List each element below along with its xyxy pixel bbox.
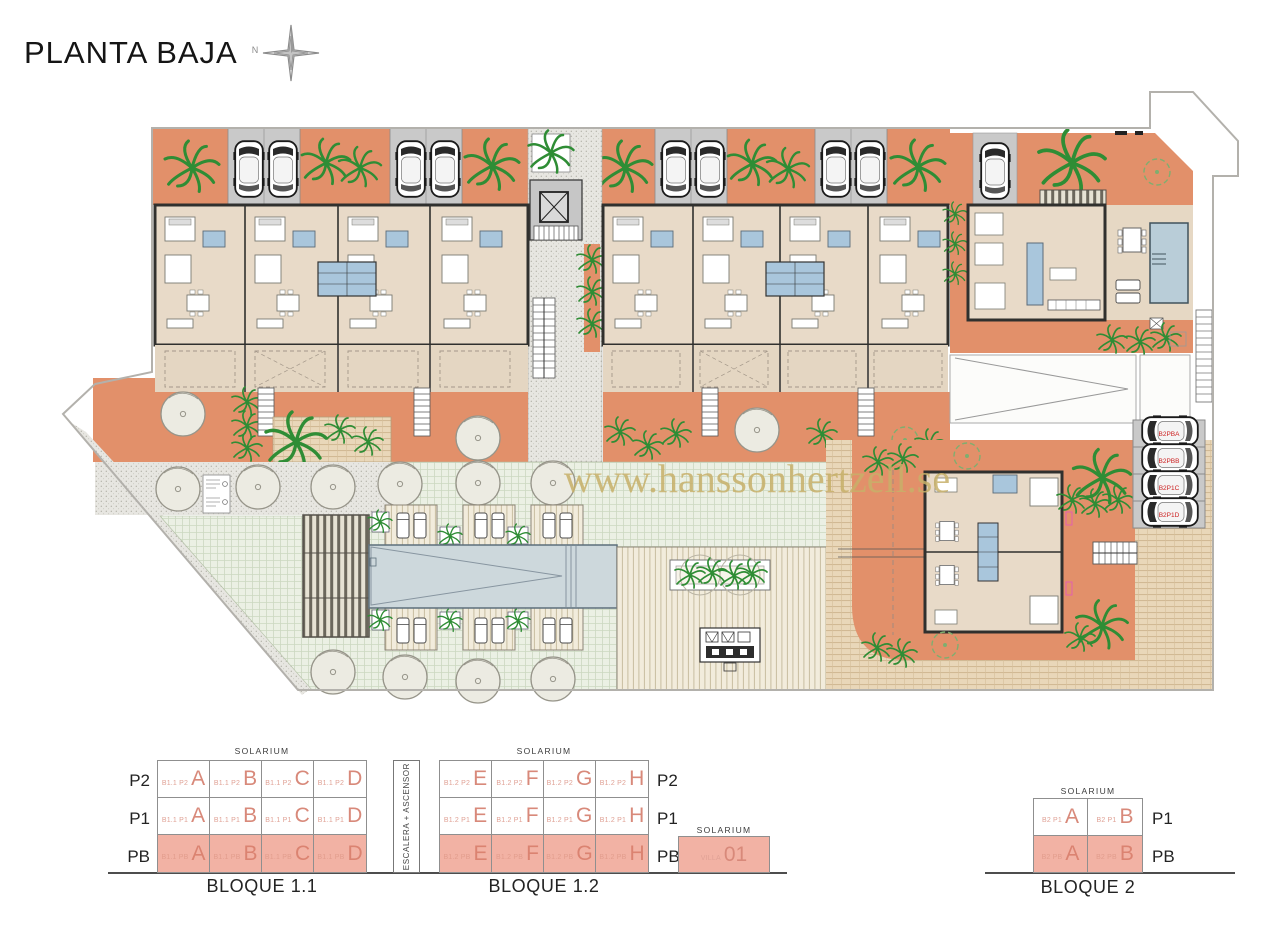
car-icon xyxy=(267,141,298,197)
sun-lounger-icon xyxy=(543,513,555,538)
level-label-p2: P2 xyxy=(657,771,678,791)
north-label: N xyxy=(252,45,259,55)
stair-elevator-box: ESCALERA + ASCENSOR xyxy=(393,760,420,873)
tree-icon xyxy=(456,659,500,703)
brick-path xyxy=(266,412,391,468)
block-1-2-building xyxy=(603,205,948,345)
solarium-label: SOLARIUM xyxy=(678,825,770,835)
watermark: www.hanssonhertzell.se xyxy=(564,456,950,501)
sun-lounger-icon xyxy=(543,618,555,643)
tree-icon xyxy=(156,467,200,511)
sun-lounger-icon xyxy=(560,618,572,643)
sun-lounger-icon xyxy=(1116,293,1140,303)
bloque-2-parking: B2PBA B2PBB B2P1C B2P1D xyxy=(1133,415,1205,528)
unit-cell: B1.2 PBG xyxy=(544,835,596,872)
level-label-p1: P1 xyxy=(1152,809,1173,829)
unit-cell: B1.1 P2C xyxy=(262,761,314,798)
tree-icon xyxy=(311,650,355,694)
level-label-pb: PB xyxy=(657,847,680,867)
central-walkway xyxy=(528,128,607,462)
site-sign xyxy=(203,475,230,513)
parking-label: B2P1D xyxy=(1159,512,1180,519)
unit-cell: B2 P1B xyxy=(1088,799,1142,836)
tree-icon xyxy=(531,657,575,701)
level-label-pb: PB xyxy=(105,847,150,867)
stairs-icon xyxy=(534,226,578,240)
parking-label: B2PBB xyxy=(1159,458,1180,465)
level-label-p1: P1 xyxy=(105,809,150,829)
tree-icon xyxy=(236,465,280,509)
site-plan: B2PBA B2PBB B2P1C B2P1D www.hanssonhertz… xyxy=(0,0,1280,710)
unit-cell: B1.1 P2A xyxy=(158,761,210,798)
car-icon xyxy=(395,141,426,197)
unit-cell: B1.2 P1H xyxy=(596,798,648,835)
unit-cell: B1.1 P2D xyxy=(314,761,366,798)
car-icon xyxy=(854,141,885,197)
car-icon xyxy=(233,141,264,197)
unit-cell: B1.2 P1F xyxy=(492,798,544,835)
unit-cell: B1.1 P1A xyxy=(158,798,210,835)
level-label-p1: P1 xyxy=(657,809,678,829)
bloque-1-2-diagram: B1.2 P2E B1.2 P2F B1.2 P2G B1.2 P2H B1.2… xyxy=(439,760,649,873)
bloque-1-1-caption: BLOQUE 1.1 xyxy=(182,876,342,897)
unit-cell: B1.1 P1B xyxy=(210,798,262,835)
unit-cell: B1.2 PBH xyxy=(596,835,648,872)
block-1-1-gardens-parking xyxy=(152,128,530,206)
east-deck xyxy=(617,547,833,690)
tree-icon xyxy=(456,461,500,505)
villa-pool xyxy=(1150,223,1188,303)
bloque-1-1-diagram: B1.1 P2A B1.1 P2B B1.1 P2C B1.1 P2D B1.1… xyxy=(157,760,367,873)
sun-lounger-icon xyxy=(414,513,426,538)
unit-cell: B1.2 P2G xyxy=(544,761,596,798)
page-title: PLANTA BAJA xyxy=(24,35,238,71)
car-icon xyxy=(694,141,725,197)
unit-cell: B1.2 P2E xyxy=(440,761,492,798)
unit-cell: B1.2 P1E xyxy=(440,798,492,835)
unit-cell: B1.1 P1D xyxy=(314,798,366,835)
unit-cell: B1.2 P2F xyxy=(492,761,544,798)
sun-lounger-icon xyxy=(475,513,487,538)
solarium-label: SOLARIUM xyxy=(157,746,367,756)
unit-cell: B1.1 PBD xyxy=(314,835,366,872)
bloque-2-diagram: B2 P1A B2 P1B B2 PBA B2 PBB xyxy=(1033,798,1143,873)
bloque-2-caption: BLOQUE 2 xyxy=(1008,877,1168,898)
header: PLANTA BAJA N xyxy=(24,24,320,82)
unit-cell: B1.2 P1G xyxy=(544,798,596,835)
sun-lounger-icon xyxy=(397,513,409,538)
solarium-label: SOLARIUM xyxy=(439,746,649,756)
car-icon xyxy=(660,141,691,197)
tree-icon xyxy=(456,416,500,460)
block-1-1-building xyxy=(155,205,528,345)
pergola xyxy=(303,515,369,637)
parking-label: B2P1C xyxy=(1159,485,1180,492)
villa-diagram: VILLA 01 xyxy=(678,836,770,873)
sun-lounger-icon xyxy=(414,618,426,643)
tree-icon xyxy=(383,655,427,699)
unit-cell: B1.2 P2H xyxy=(596,761,648,798)
block-1-2-gardens-parking xyxy=(598,128,950,206)
tree-icon xyxy=(311,465,355,509)
unit-cell: B1.1 PBA xyxy=(158,835,210,872)
pergola xyxy=(1040,190,1106,205)
sun-lounger-icon xyxy=(560,513,572,538)
ramp-area xyxy=(950,355,1190,423)
car-icon xyxy=(429,141,460,197)
east-stairs xyxy=(1196,310,1212,402)
communal-pool xyxy=(369,545,617,608)
sun-lounger-icon xyxy=(492,513,504,538)
sun-lounger-icon xyxy=(397,618,409,643)
stair-elevator-label: ESCALERA + ASCENSOR xyxy=(402,763,411,870)
car-icon xyxy=(820,141,851,197)
level-label-p2: P2 xyxy=(105,771,150,791)
sun-lounger-icon xyxy=(1116,280,1140,290)
unit-cell: B1.1 P1C xyxy=(262,798,314,835)
tree-icon xyxy=(161,392,205,436)
unit-cell: B1.2 PBF xyxy=(492,835,544,872)
unit-cell: B1.1 P2B xyxy=(210,761,262,798)
tree-icon xyxy=(378,462,422,506)
tree-icon xyxy=(735,408,779,452)
solarium-label: SOLARIUM xyxy=(1033,786,1143,796)
car-icon xyxy=(979,143,1010,199)
unit-cell: B2 PBB xyxy=(1088,836,1142,873)
villa-zone xyxy=(943,130,1193,355)
unit-cell: B1.2 PBE xyxy=(440,835,492,872)
sun-lounger-icon xyxy=(492,618,504,643)
unit-cell: B1.1 PBC xyxy=(262,835,314,872)
unit-cell: B2 PBA xyxy=(1034,836,1088,873)
level-label-pb: PB xyxy=(1152,847,1175,867)
sun-lounger-icon xyxy=(475,618,487,643)
parking-label: B2PBA xyxy=(1159,431,1181,438)
unit-cell: B2 P1A xyxy=(1034,799,1088,836)
bloque-1-2-caption: BLOQUE 1.2 xyxy=(464,876,624,897)
unit-cell: B1.1 PBB xyxy=(210,835,262,872)
compass-rose-icon xyxy=(262,24,320,82)
